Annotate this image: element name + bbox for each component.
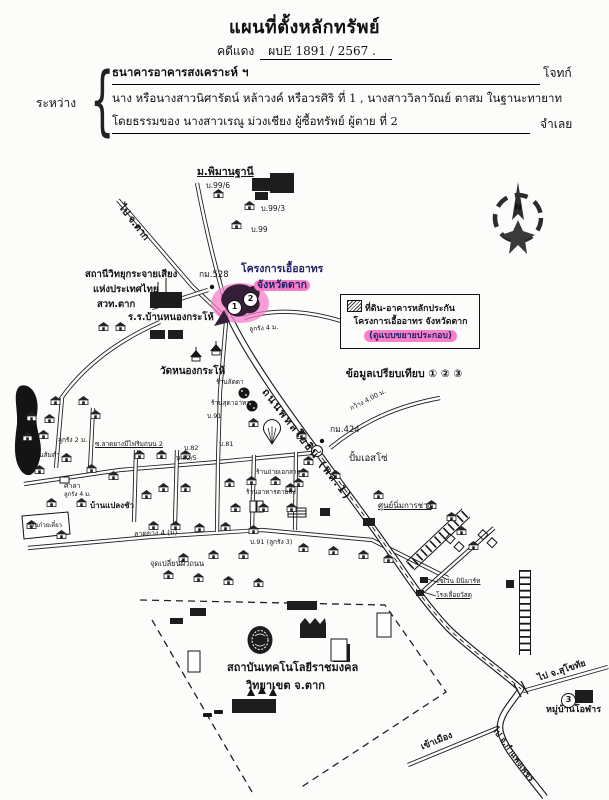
km528-dot: [210, 285, 214, 289]
house-icon: [78, 396, 89, 405]
comparison-note: ข้อมูลเปรียบเทียบ ① ② ③: [338, 365, 470, 382]
house-icon: [61, 453, 72, 462]
building-icon: [255, 192, 268, 200]
temple-icon: [190, 347, 202, 361]
house-icon: [373, 490, 384, 499]
pond: [15, 385, 41, 475]
campus-boundary: [140, 600, 446, 788]
building-icon: [190, 608, 206, 616]
house-icon: [180, 483, 191, 492]
building-outline-icon: [188, 651, 200, 672]
building-outline-icon: [250, 501, 256, 512]
house-icon: [248, 525, 259, 534]
road-into-town: [408, 727, 500, 765]
compass-rose: N: [495, 182, 541, 254]
house-icon: [178, 553, 189, 562]
house-icon: [115, 322, 126, 331]
building-outline-icon: [60, 477, 69, 483]
stall-row-diagonal: [406, 509, 470, 570]
house-icon: [170, 521, 181, 530]
building-icon: [506, 580, 514, 588]
house-icon: [244, 201, 255, 210]
house-icon: [426, 500, 437, 509]
house-icon: [193, 573, 204, 582]
house-icon: [208, 550, 219, 559]
house-icon: [38, 430, 49, 439]
building-outline-icon: [377, 613, 391, 637]
road-east-branch: [330, 398, 440, 448]
house-icon: [163, 570, 174, 579]
house-icon: [44, 414, 55, 423]
shell-icon: [264, 420, 281, 444]
house-icon: [270, 476, 281, 485]
map-canvas: N: [0, 0, 609, 800]
building-icon: [575, 690, 593, 703]
temple-icon: [210, 341, 222, 355]
house-icon: [298, 543, 309, 552]
house-icon: [230, 503, 241, 512]
building-outline-icon: [331, 639, 347, 661]
house-icon: [253, 578, 264, 587]
road-nim: [422, 528, 494, 592]
building-icon: [150, 330, 165, 339]
highway-centerline: [322, 458, 521, 689]
building-icon: [252, 178, 272, 191]
house-icon: [224, 478, 235, 487]
antenna-icon: [158, 278, 166, 292]
house-icon: [238, 550, 249, 559]
building-icon: [150, 292, 182, 308]
legend-box: ที่ดิน-อาคารหลักประกัน โครงการเอื้ออาทร …: [340, 294, 480, 349]
house-icon: [180, 450, 191, 459]
house-icon: [76, 498, 87, 507]
house-icon: [213, 189, 224, 198]
house-icon: [248, 418, 259, 427]
hatch-swatch-icon: [347, 300, 362, 312]
building-icon: [287, 601, 317, 610]
legend-line-2: โครงการเอื้ออาทร จังหวัดตาก: [347, 316, 474, 329]
km424-dot: [320, 439, 324, 443]
road-to-sukhothai: [523, 667, 608, 691]
building-icon: [300, 624, 326, 638]
house-icon: [156, 450, 167, 459]
house-icon: [328, 546, 339, 555]
building-icon: [270, 173, 294, 193]
factory-roof: [300, 618, 326, 624]
legend-line-3: (ดูแบบขยายประกอบ): [364, 330, 457, 343]
legend-line-1: ที่ดิน-อาคารหลักประกัน: [365, 304, 455, 314]
road-east-branch: [330, 398, 440, 448]
outline-buildings-layer: [60, 477, 391, 672]
house-icon: [98, 322, 109, 331]
building-icon: [416, 590, 424, 596]
house-icon: [141, 490, 152, 499]
house-icon: [194, 523, 205, 532]
building-icon: [320, 508, 330, 516]
house-icon: [456, 526, 467, 535]
building-icon: [168, 330, 183, 339]
building-icon: [420, 577, 428, 583]
house-icon: [303, 456, 314, 465]
document-page: แผนที่ตั้งหลักทรัพย์ คดีแดงผบE 1891 / 25…: [0, 0, 609, 800]
esso-icon: [312, 446, 323, 457]
building-icon: [170, 618, 183, 624]
house-icon: [223, 576, 234, 585]
road-northwest-link: [60, 322, 160, 400]
house-icon: [358, 550, 369, 559]
house-icon: [446, 512, 457, 521]
house-icon: [46, 498, 57, 507]
road-v5: [217, 462, 218, 532]
road-northwest-link: [60, 322, 160, 400]
stall-row-vertical: [520, 570, 531, 655]
house-icon: [220, 522, 231, 531]
house-icon: [298, 468, 309, 477]
compass-north-label: N: [514, 203, 522, 213]
house-icon: [148, 521, 159, 530]
building-icon: [363, 518, 375, 526]
house-icon: [231, 220, 242, 229]
campus-seal: [248, 626, 273, 654]
building-icon: [232, 699, 276, 713]
house-icon: [158, 483, 169, 492]
house-icon: [86, 464, 97, 473]
